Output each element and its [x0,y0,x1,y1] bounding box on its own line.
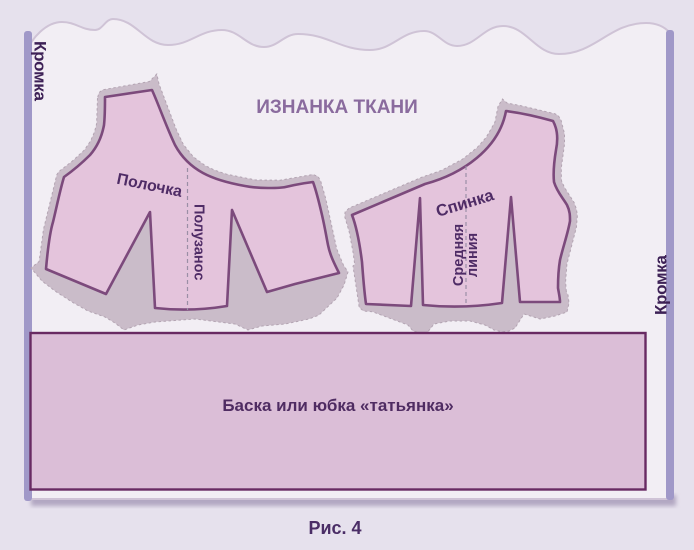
svg-text:Баска или юбка «татьянка»: Баска или юбка «татьянка» [222,396,453,415]
svg-text:Кромка: Кромка [652,254,671,315]
svg-text:линия: линия [465,233,481,277]
svg-text:Кромка: Кромка [31,41,50,102]
svg-text:Рис. 4: Рис. 4 [308,518,361,538]
svg-text:Полузанос: Полузанос [191,204,207,280]
svg-text:ИЗНАНКА ТКАНИ: ИЗНАНКА ТКАНИ [256,97,418,118]
